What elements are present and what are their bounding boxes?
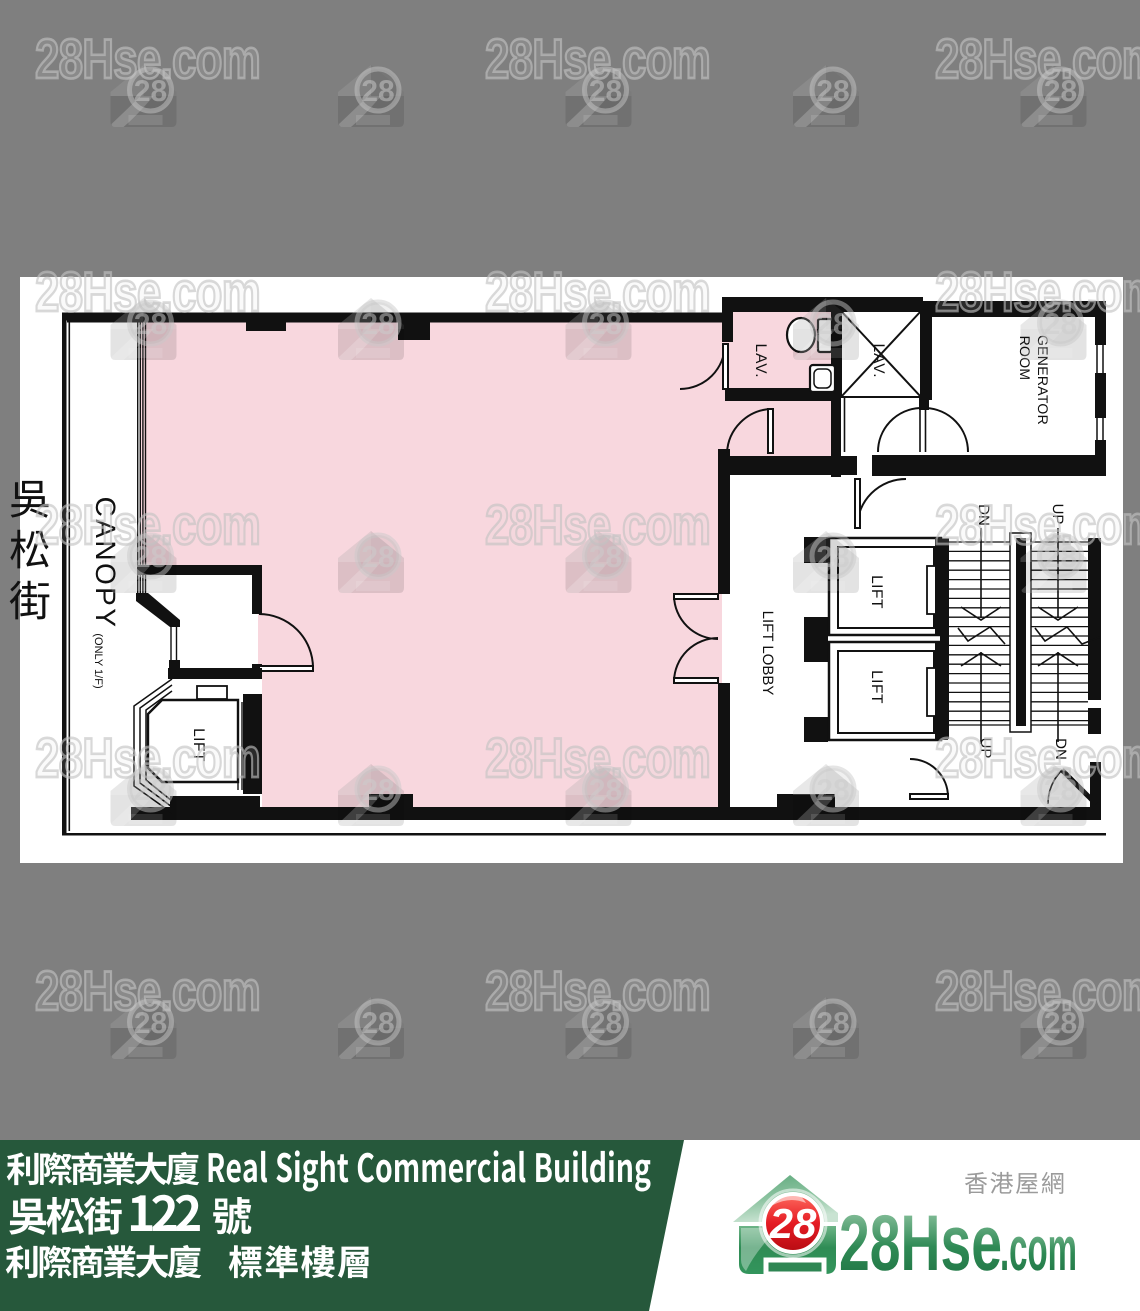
svg-text:28: 28 <box>769 1200 817 1247</box>
svg-text:LIFT: LIFT <box>868 575 885 609</box>
svg-text:28Hse: 28Hse <box>839 1198 1002 1287</box>
svg-text:LIFT LOBBY: LIFT LOBBY <box>759 611 776 696</box>
svg-text:LAV.: LAV. <box>870 343 887 378</box>
svg-text:LIFT: LIFT <box>868 670 885 704</box>
svg-text:(ONLY 1/F): (ONLY 1/F) <box>92 633 104 688</box>
svg-text:LAV.: LAV. <box>752 343 769 378</box>
svg-text:.com: .com <box>1000 1215 1077 1284</box>
